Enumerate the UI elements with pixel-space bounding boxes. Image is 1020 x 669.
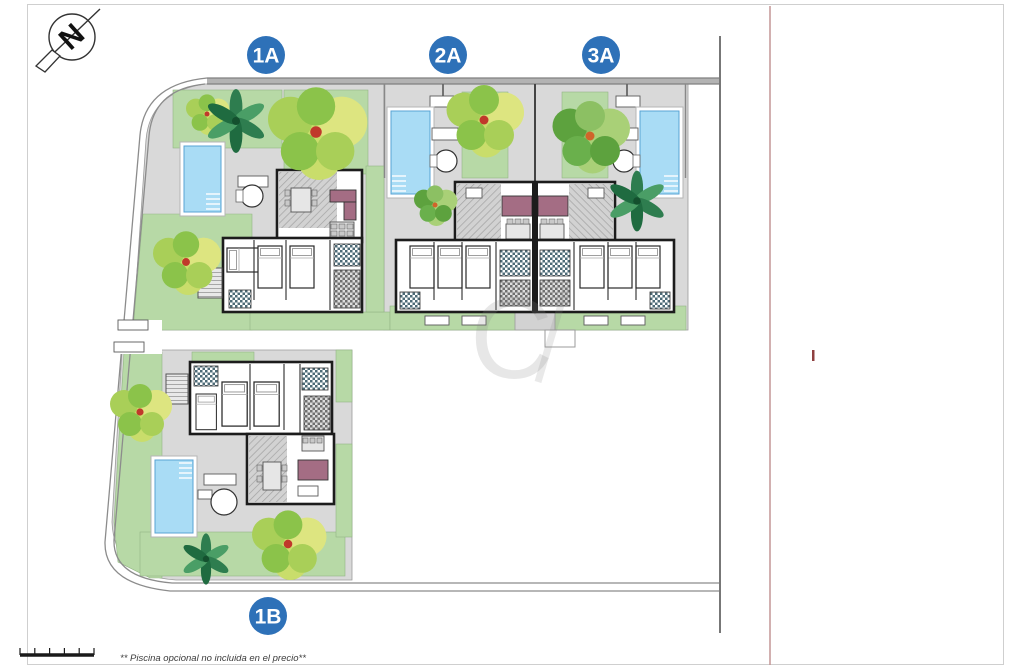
unit-badge-label: 1B bbox=[255, 606, 282, 629]
living-wing bbox=[247, 434, 334, 504]
bathroom bbox=[302, 368, 328, 390]
kitchen bbox=[304, 396, 330, 430]
site-plan-page: N C 1A 2A 3A 1B ** Piscina opcional no i… bbox=[0, 0, 1020, 669]
garden-table-icon bbox=[211, 489, 237, 515]
living-wing bbox=[277, 170, 362, 242]
bathroom bbox=[334, 244, 360, 266]
unit-badge-2a[interactable]: 2A bbox=[429, 36, 467, 74]
bedroom-wing bbox=[223, 238, 362, 312]
sofa bbox=[344, 202, 356, 220]
unit-badge-label: 2A bbox=[435, 45, 462, 68]
footer-note: ** Piscina opcional no incluida en el pr… bbox=[120, 653, 306, 664]
pool bbox=[151, 456, 197, 537]
unit-badge-1a[interactable]: 1A bbox=[247, 36, 285, 74]
unit-badge-1b[interactable]: 1B bbox=[249, 597, 287, 635]
svg-text:C: C bbox=[470, 275, 553, 403]
site-plan-svg: N C 1A 2A 3A 1B ** Piscina opcional no i… bbox=[0, 0, 1020, 669]
kitchen-table bbox=[330, 222, 354, 238]
watermark: C bbox=[470, 275, 566, 403]
kitchen bbox=[334, 270, 360, 308]
bathroom bbox=[229, 290, 251, 308]
unit-badge-label: 3A bbox=[588, 45, 615, 68]
pool bbox=[180, 142, 225, 216]
scale-bar bbox=[20, 648, 94, 655]
sofa bbox=[330, 190, 356, 202]
kitchen-table bbox=[302, 436, 324, 451]
unit-badge-label: 1A bbox=[253, 45, 280, 68]
bathroom bbox=[194, 366, 218, 386]
sun-lounger bbox=[204, 474, 236, 485]
sun-lounger bbox=[198, 490, 212, 499]
bedroom-wing bbox=[190, 362, 332, 434]
unit-badge-3a[interactable]: 3A bbox=[582, 36, 620, 74]
boundary-red-tick bbox=[812, 350, 815, 361]
north-compass-icon: N bbox=[36, 9, 100, 72]
sofa bbox=[298, 460, 328, 480]
